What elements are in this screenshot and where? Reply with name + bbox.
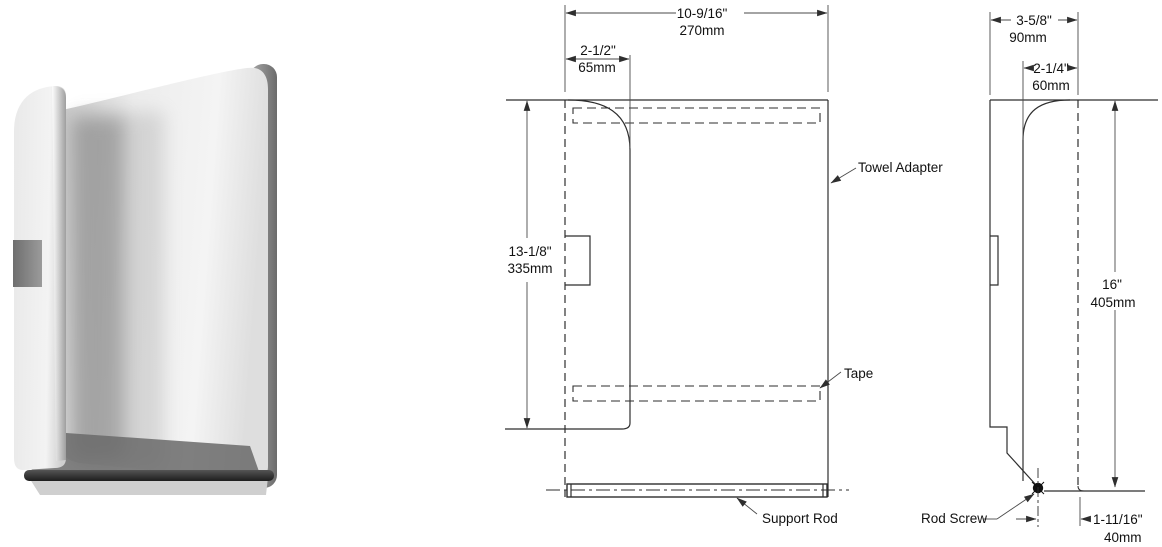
tape-label: Tape xyxy=(844,366,873,381)
technical-drawing-canvas xyxy=(0,0,1162,547)
towel-adapter-label: Towel Adapter xyxy=(858,160,943,175)
tape-strip-bottom xyxy=(573,386,820,401)
front-height-inches: 13-1/8" xyxy=(508,244,551,259)
front-view-dimensions xyxy=(527,5,856,514)
side-rod-inches: 1-11/16" xyxy=(1093,512,1143,527)
side-front-inches: 2-1/4" xyxy=(1033,61,1069,76)
product-photo xyxy=(13,64,277,495)
front-height-mm: 335mm xyxy=(507,261,552,276)
support-rod-shape xyxy=(546,484,849,497)
side-depth-mm: 90mm xyxy=(1009,30,1047,45)
photo-support-rod xyxy=(24,470,274,481)
tape-strip-top xyxy=(573,108,820,123)
rod-screw-label: Rod Screw xyxy=(921,511,987,526)
side-rod-mm: 40mm xyxy=(1104,530,1142,545)
spec-sheet: 10-9/16" 270mm 2-1/2" 65mm 13-1/8" 335mm… xyxy=(0,0,1162,547)
support-rod-label: Support Rod xyxy=(762,511,838,526)
side-depth-inches: 3-5/8" xyxy=(1016,13,1052,28)
front-offset-mm: 65mm xyxy=(578,60,616,75)
side-height-mm: 405mm xyxy=(1090,295,1135,310)
front-width-mm: 270mm xyxy=(679,23,724,38)
photo-notch xyxy=(13,240,42,287)
front-view-drawing xyxy=(505,100,849,497)
front-offset-inches: 2-1/2" xyxy=(580,43,616,58)
side-height-inches: 16" xyxy=(1102,277,1122,292)
side-view-drawing xyxy=(990,100,1158,527)
front-width-inches: 10-9/16" xyxy=(677,6,728,21)
photo-shadow-soft xyxy=(78,112,164,468)
rod-screw-shape xyxy=(1032,468,1044,527)
side-front-mm: 60mm xyxy=(1032,78,1070,93)
